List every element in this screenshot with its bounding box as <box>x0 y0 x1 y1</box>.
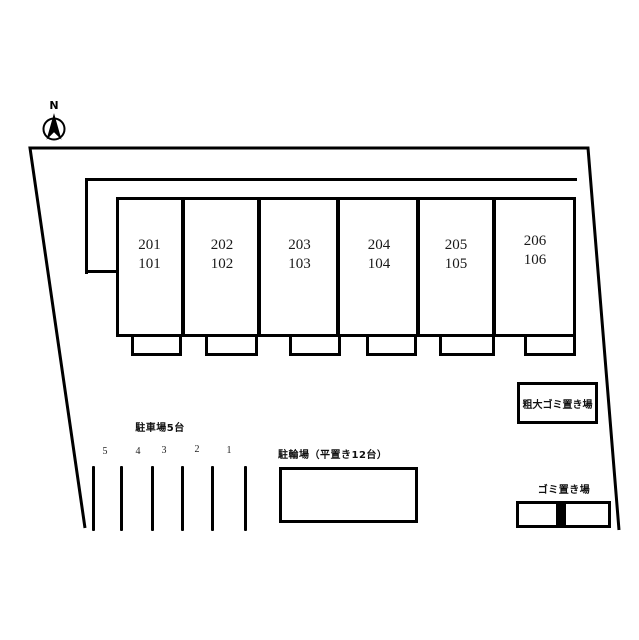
garbage-area-divider <box>556 501 566 528</box>
bulky-garbage-area: 粗大ゴミ置き場 <box>517 382 598 424</box>
bicycle-parking-label: 駐輪場（平置き12台） <box>278 446 387 461</box>
unit-lower-number: 104 <box>368 256 391 272</box>
compass-north-label: N <box>46 99 62 112</box>
parking-area-label: 駐車場5台 <box>110 419 210 434</box>
unit-upper-number: 202 <box>211 237 234 253</box>
unit-label-204-104: 204 104 <box>340 236 418 274</box>
building-band-left-wall <box>85 178 88 274</box>
unit-lower-number: 102 <box>211 256 234 272</box>
parking-space-number-5: 5 <box>98 446 112 457</box>
building-band-top-wall <box>85 178 577 181</box>
unit-lower-number: 105 <box>445 256 468 272</box>
balcony-2 <box>205 334 258 356</box>
balcony-1 <box>131 334 182 356</box>
unit-upper-number: 201 <box>138 237 161 253</box>
bulky-garbage-label: 粗大ゴミ置き場 <box>523 396 593 411</box>
unit-lower-number: 101 <box>138 256 161 272</box>
unit-upper-number: 203 <box>288 237 311 253</box>
unit-label-203-103: 203 103 <box>261 236 338 274</box>
building-band-step-wall <box>85 270 118 273</box>
parking-stall-divider <box>211 466 214 531</box>
balcony-3 <box>289 334 341 356</box>
parking-stall-divider <box>244 466 247 531</box>
parking-stall-divider <box>92 466 95 531</box>
parking-space-number-3: 3 <box>157 445 171 456</box>
unit-lower-number: 103 <box>288 256 311 272</box>
unit-upper-number: 205 <box>445 237 468 253</box>
site-plan: N 201 101 202 102 203 103 204 104 205 10… <box>0 0 639 640</box>
parking-stall-divider <box>120 466 123 531</box>
balcony-5 <box>439 334 495 356</box>
parking-stall-divider <box>151 466 154 531</box>
garbage-area-label: ゴミ置き場 <box>517 481 611 496</box>
unit-label-206-106: 206 106 <box>494 232 576 270</box>
parking-space-number-1: 1 <box>222 445 236 456</box>
balcony-6 <box>524 334 576 356</box>
balcony-4 <box>366 334 417 356</box>
parking-stall-divider <box>181 466 184 531</box>
parking-space-number-4: 4 <box>131 446 145 457</box>
unit-label-205-105: 205 105 <box>418 236 494 274</box>
unit-upper-number: 206 <box>524 233 547 249</box>
unit-label-202-102: 202 102 <box>185 236 259 274</box>
unit-upper-number: 204 <box>368 237 391 253</box>
bicycle-parking-area <box>279 467 418 523</box>
parking-space-number-2: 2 <box>190 444 204 455</box>
unit-lower-number: 106 <box>524 252 547 268</box>
unit-label-201-101: 201 101 <box>116 236 183 274</box>
